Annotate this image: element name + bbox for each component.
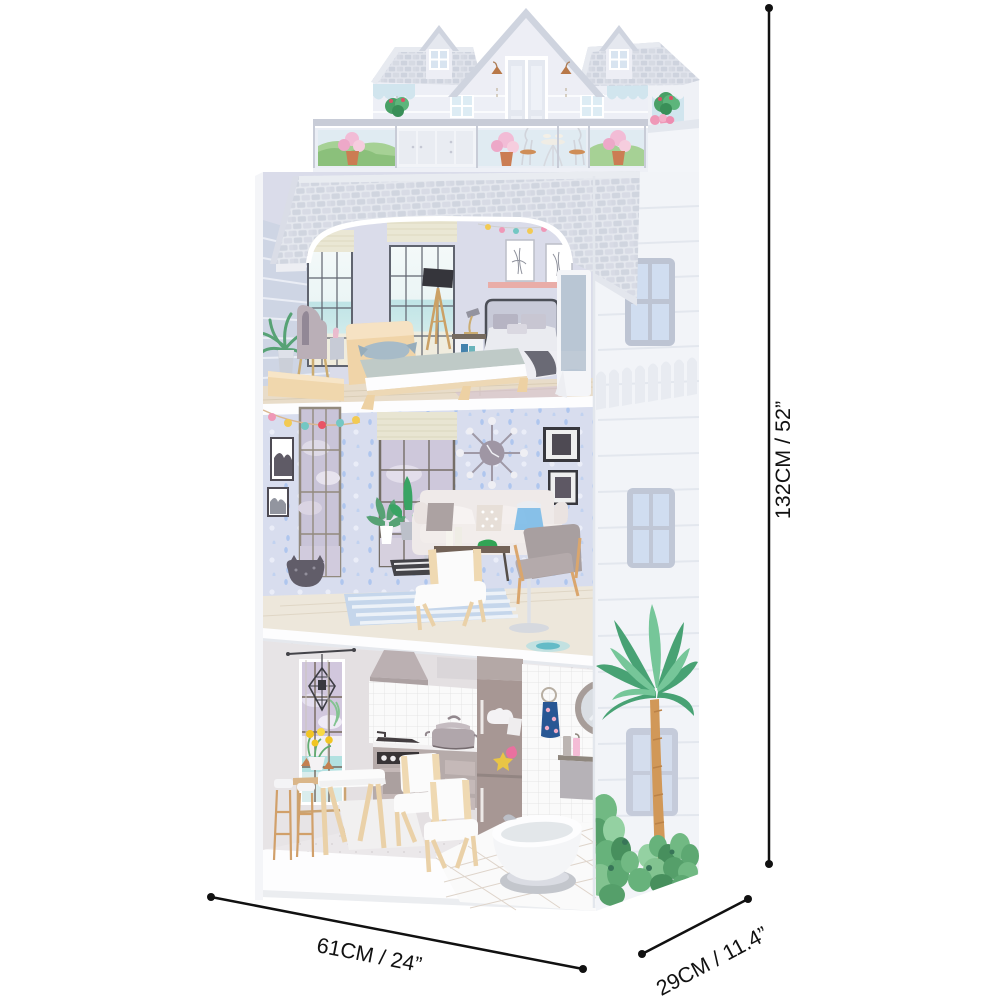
svg-text:132CM / 52”: 132CM / 52” <box>771 401 795 519</box>
